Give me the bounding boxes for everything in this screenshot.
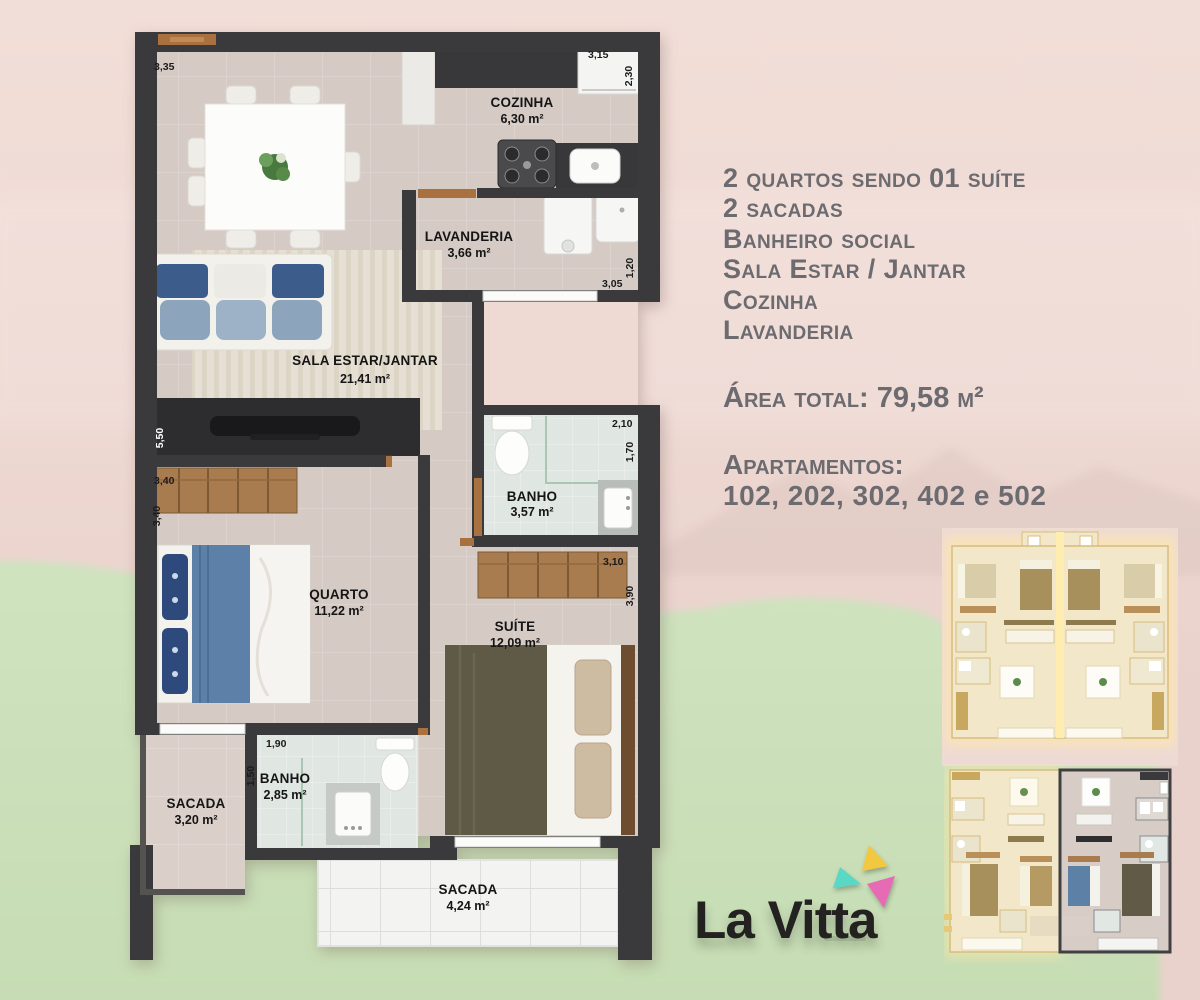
dim-kitchen-depth: 2,30 — [623, 66, 635, 87]
tile-grout-sacada — [146, 735, 245, 889]
thumbnail-floor-highlighted — [942, 528, 1178, 768]
logo-tagline-smudge — [824, 936, 866, 941]
dim-top-right: 3,15 — [588, 49, 609, 61]
dim-sala-height: 5,50 — [154, 428, 166, 449]
label-sacada-1: SACADA — [167, 796, 226, 811]
apartments-numbers: 102, 202, 302, 402 e 502 — [723, 480, 1046, 511]
recess-outside — [484, 302, 638, 405]
label-banho-suite: BANHO — [260, 771, 311, 786]
label-sala: SALA ESTAR/JANTAR — [292, 353, 438, 368]
triangle-teal-icon — [833, 867, 861, 888]
bed-quarto — [148, 545, 310, 703]
dining-table — [188, 86, 360, 248]
page: COZINHA 6,30 m² LAVANDERIA 3,66 m² SALA … — [0, 0, 1200, 1000]
label-suite: SUÍTE — [495, 619, 536, 634]
area-sala: 21,41 m² — [340, 372, 390, 386]
triangle-yellow-icon — [862, 845, 888, 871]
dim-banho-depth: 1,70 — [624, 442, 636, 463]
dim-suite-width: 3,10 — [603, 556, 624, 568]
dim-banho2-width: 1,90 — [266, 738, 287, 750]
dim-banho-width: 2,10 — [612, 418, 633, 430]
label-lavanderia: LAVANDERIA — [425, 229, 514, 244]
feature-line: Banheiro social — [723, 224, 1143, 254]
stove — [498, 140, 556, 188]
dim-banho2-depth: 1,50 — [245, 766, 257, 787]
dim-suite-depth: 3,90 — [624, 586, 636, 607]
total-area-text: Área total: 79,58 m² — [723, 382, 984, 415]
area-sacada-2: 4,24 m² — [446, 899, 489, 913]
feature-line: 2 quartos sendo 01 suíte — [723, 163, 1143, 193]
bed-suite — [445, 645, 635, 835]
dim-quarto-width: 3,40 — [154, 475, 175, 487]
thumb1-divider — [1056, 532, 1064, 738]
triangle-pink-icon — [867, 876, 895, 908]
floor-plan: COZINHA 6,30 m² LAVANDERIA 3,66 m² SALA … — [130, 28, 665, 963]
thumbnail-floor-location — [944, 764, 1176, 964]
feature-list: 2 quartos sendo 01 suíte 2 sacadas Banhe… — [723, 163, 1143, 345]
label-cozinha: COZINHA — [491, 95, 554, 110]
kitchen-sink — [570, 149, 620, 183]
logo: La Vitta — [694, 884, 924, 994]
tv-panel — [150, 398, 420, 456]
area-banho-social: 3,57 m² — [510, 505, 553, 519]
toilet-social — [492, 416, 532, 475]
dim-top-left: 3,35 — [154, 61, 175, 73]
area-cozinha: 6,30 m² — [500, 112, 543, 126]
area-suite: 12,09 m² — [490, 636, 540, 650]
area-quarto: 11,22 m² — [314, 604, 363, 618]
area-sacada-1: 3,20 m² — [174, 813, 217, 827]
dim-quarto-depth: 3,40 — [151, 506, 163, 527]
washing-machine — [544, 196, 592, 254]
label-sacada-2: SACADA — [439, 882, 498, 897]
sofa — [148, 254, 332, 350]
label-banho-social: BANHO — [507, 489, 558, 504]
label-quarto: QUARTO — [309, 587, 368, 602]
feature-line: 2 sacadas — [723, 193, 1143, 223]
area-lavanderia: 3,66 m² — [447, 246, 490, 260]
logo-triangles-icon — [826, 840, 906, 918]
feature-line: Cozinha — [723, 285, 1143, 315]
apartments-label: Apartamentos: — [723, 449, 1046, 480]
bath-sink-suite — [326, 783, 380, 845]
area-banho-suite: 2,85 m² — [263, 788, 306, 802]
laundry-tank — [596, 194, 640, 242]
dim-lav-width: 3,05 — [602, 278, 623, 290]
dim-lav-depth: 1,20 — [624, 258, 636, 279]
feature-line: Sala Estar / Jantar — [723, 254, 1143, 284]
bath-counter-social — [598, 480, 638, 535]
apartments-block: Apartamentos: 102, 202, 302, 402 e 502 — [723, 449, 1046, 511]
feature-line: Lavanderia — [723, 315, 1143, 345]
